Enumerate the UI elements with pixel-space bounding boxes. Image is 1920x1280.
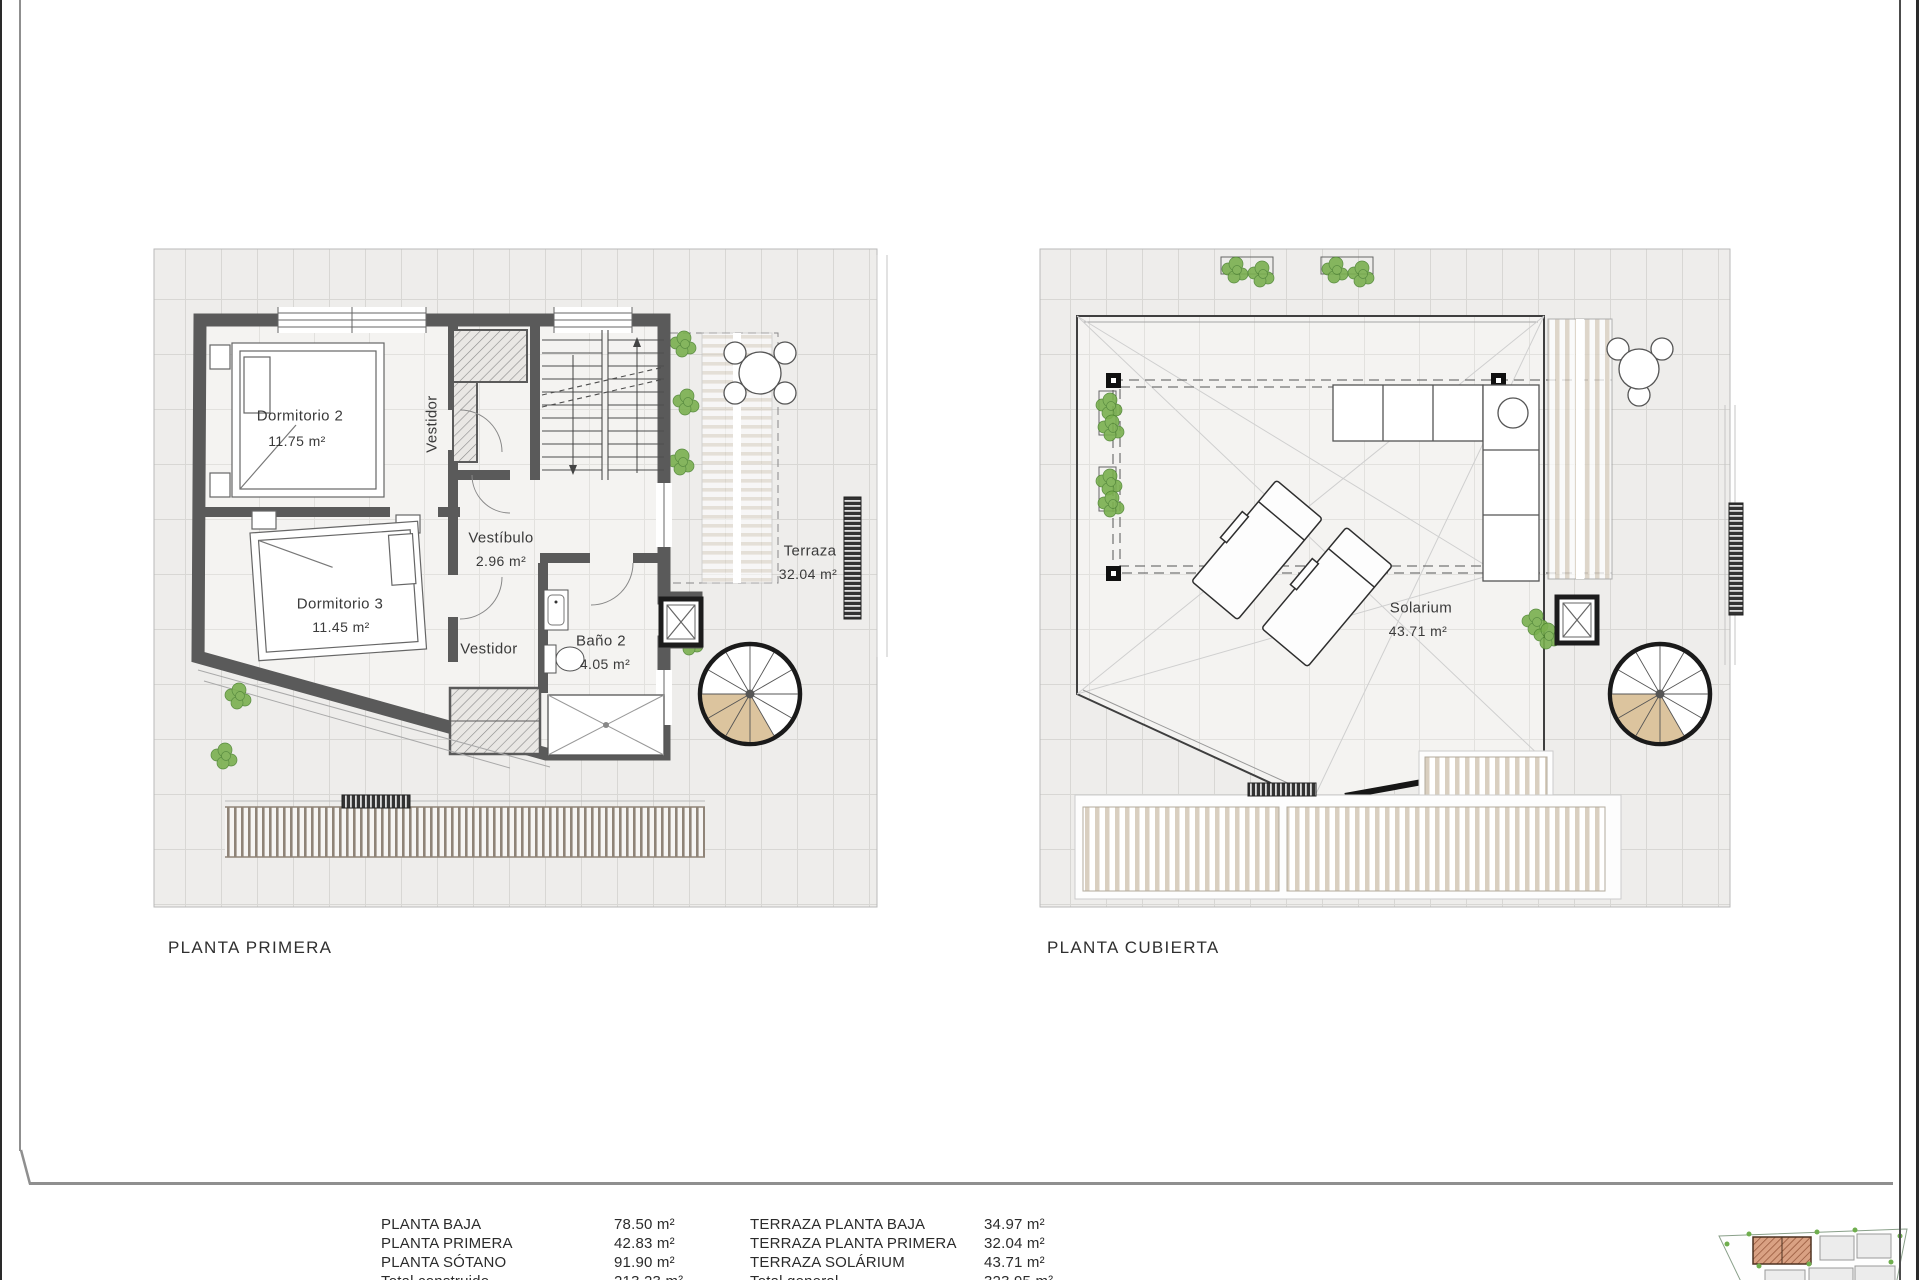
left-plan-title: PLANTA PRIMERA	[168, 938, 332, 958]
room-label-terraza: Terraza	[784, 543, 837, 560]
bed-dormitorio3	[250, 511, 427, 661]
room-area-dormitorio3: 11.45 m²	[312, 619, 369, 635]
table-floor-label: PLANTA SÓTANO	[381, 1254, 506, 1271]
right-floor-plan-drawing	[1035, 245, 1745, 915]
roof-grille	[1729, 503, 1743, 615]
elevator	[661, 599, 701, 645]
table-terrace-label: Total general	[750, 1273, 839, 1280]
site-plan-highlighted-plot	[1753, 1237, 1811, 1264]
roof-spiral-staircase	[1610, 644, 1710, 744]
room-area-solarium: 43.71 m²	[1389, 623, 1447, 639]
table-floor-label: PLANTA PRIMERA	[381, 1235, 513, 1252]
room-area-dormitorio2: 11.75 m²	[268, 433, 325, 449]
frame-right-inner-line	[1899, 0, 1901, 1280]
table-floor-value: 213.23 m²	[614, 1273, 683, 1280]
room-label-vestidor-bottom: Vestidor	[460, 641, 517, 658]
table-terrace-label: TERRAZA PLANTA BAJA	[750, 1216, 925, 1233]
frame-left-outer-line	[0, 0, 2, 1280]
table-terrace-value: 34.97 m²	[984, 1216, 1045, 1233]
room-label-dormitorio2: Dormitorio 2	[257, 408, 344, 425]
spiral-staircase	[700, 644, 800, 744]
table-terrace-label: TERRAZA PLANTA PRIMERA	[750, 1235, 957, 1252]
roof-pergola-strip	[1548, 319, 1612, 579]
site-key-plan	[1705, 1222, 1917, 1280]
table-floor-label: Total construido	[381, 1273, 489, 1280]
table-floor-label: PLANTA BAJA	[381, 1216, 481, 1233]
table-floor-value: 42.83 m²	[614, 1235, 675, 1252]
table-terrace-value: 32.04 m²	[984, 1235, 1045, 1252]
table-terrace-label: TERRAZA SOLÁRIUM	[750, 1254, 905, 1271]
terrace-grille	[844, 497, 861, 619]
room-label-dormitorio3: Dormitorio 3	[297, 596, 384, 613]
frame-bottom-line	[29, 1182, 1893, 1185]
roof-elevator	[1557, 597, 1597, 643]
room-label-vestibulo: Vestíbulo	[468, 530, 533, 547]
plan-sheet: Dormitorio 2 11.75 m² Dormitorio 3 11.45…	[0, 0, 1920, 1280]
room-area-vestibulo: 2.96 m²	[476, 553, 526, 569]
room-area-terraza: 32.04 m²	[779, 566, 837, 582]
room-label-bano2: Baño 2	[576, 633, 626, 650]
frame-right-outer-line	[1916, 0, 1919, 1280]
room-label-vestidor-top: Vestidor	[424, 395, 441, 452]
table-floor-value: 78.50 m²	[614, 1216, 675, 1233]
frame-left-inner-line	[19, 0, 21, 1151]
table-terrace-value: 323.95 m²	[984, 1273, 1053, 1280]
room-area-bano2: 4.05 m²	[580, 656, 630, 672]
table-floor-value: 91.90 m²	[614, 1254, 675, 1271]
right-plan-title: PLANTA CUBIERTA	[1047, 938, 1220, 958]
table-terrace-value: 43.71 m²	[984, 1254, 1045, 1271]
room-label-solarium: Solarium	[1390, 600, 1452, 617]
